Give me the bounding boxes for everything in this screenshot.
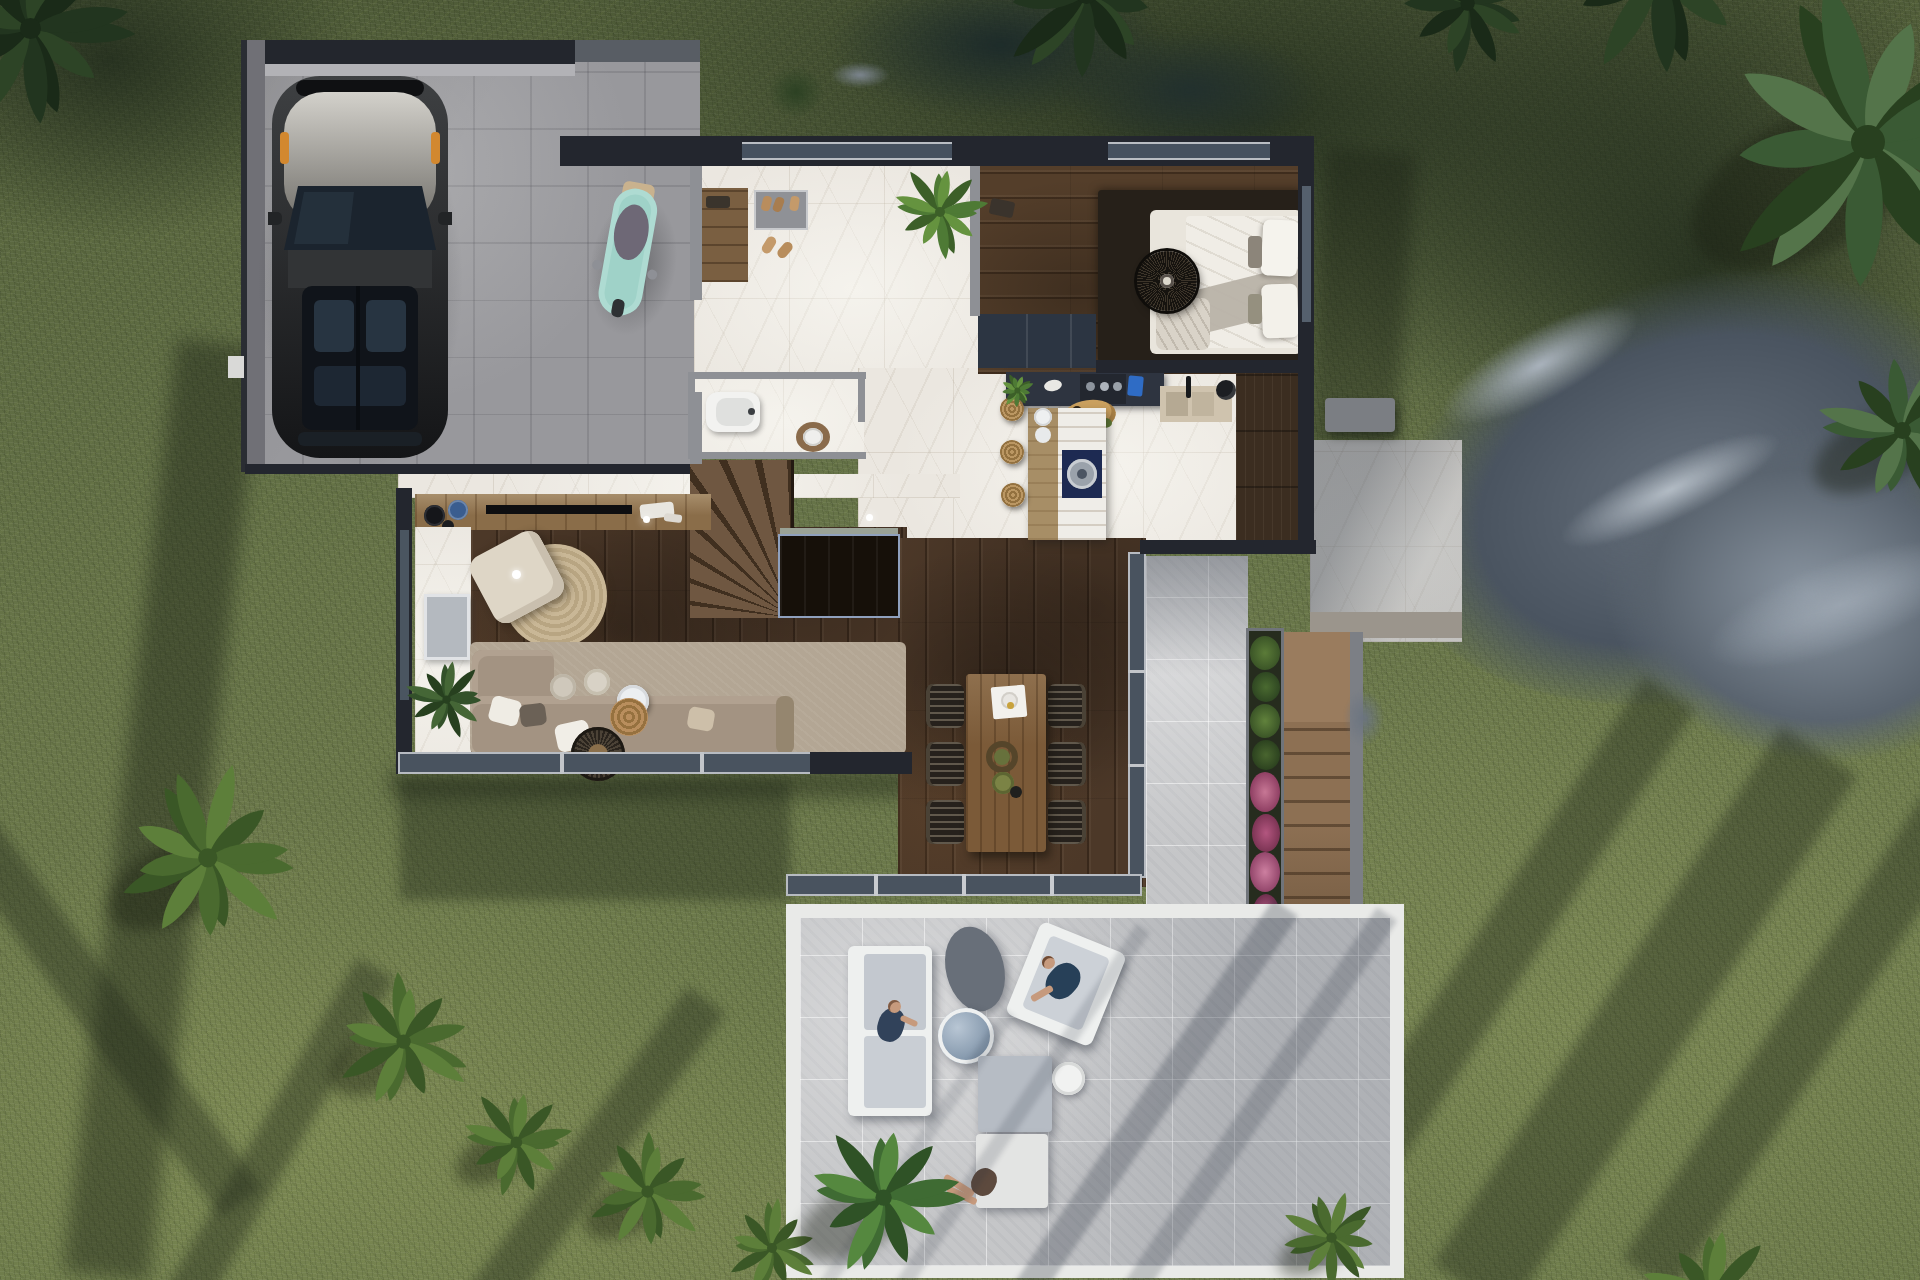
- lemon: [1007, 702, 1014, 709]
- bedroom-south-wall: [1096, 360, 1302, 373]
- sofa-pillow-dark: [519, 702, 548, 727]
- planter-flowers-pink: [1252, 814, 1280, 852]
- bed-pillow: [1261, 283, 1299, 338]
- garden-bench: [1325, 398, 1395, 432]
- north-window: [1108, 142, 1270, 160]
- deck-rock: [1344, 690, 1384, 746]
- wc-wall-bottom: [688, 452, 866, 459]
- cooktop-burner: [1100, 382, 1109, 391]
- bush: [768, 66, 824, 118]
- entry-left-wall: [690, 166, 702, 300]
- entry-tray: [706, 196, 730, 208]
- south-window-living: [398, 752, 814, 774]
- marble-console: [424, 594, 470, 660]
- kitchen-south-wall: [1140, 540, 1316, 554]
- wc-wall-right: [858, 372, 865, 422]
- tv: [486, 505, 632, 514]
- ceiling-light: [866, 514, 873, 521]
- island-bowl-inner: [1077, 469, 1087, 479]
- outdoor-sofa-cushion: [864, 1036, 926, 1108]
- bar-stool: [1000, 397, 1024, 421]
- garage-step-mark: [228, 356, 244, 378]
- bedroom-closet: [978, 314, 1096, 368]
- dining-chair: [926, 742, 964, 786]
- cooktop-burner: [1086, 382, 1095, 391]
- dining-chair: [926, 684, 964, 728]
- sink-basin: [1166, 392, 1188, 416]
- bar-stool: [1001, 483, 1025, 507]
- wreath-greens: [994, 749, 1010, 765]
- decor-plate-blue: [448, 500, 468, 520]
- wet-dark-patch: [1060, 30, 1320, 150]
- person-head: [1042, 956, 1055, 969]
- toilet-flush: [748, 408, 755, 415]
- kettle: [1216, 380, 1236, 400]
- north-window: [742, 142, 952, 160]
- door-rail: [1128, 670, 1146, 673]
- walkway-shade: [1146, 556, 1248, 676]
- window-mullion: [700, 752, 704, 774]
- planter-plant: [1250, 704, 1280, 738]
- coffee-table-rattan: [610, 698, 648, 736]
- armchair-light: [512, 570, 521, 579]
- east-sliding-door: [1128, 552, 1146, 878]
- bar-stool: [1000, 440, 1024, 464]
- east-window: [1302, 186, 1311, 322]
- scene-floorplan: [0, 0, 1920, 1280]
- dining-chair: [1048, 684, 1086, 728]
- suv-car: [268, 74, 452, 460]
- planter-plant: [1252, 672, 1280, 702]
- blue-pack: [1127, 375, 1144, 396]
- wc-wall-top: [688, 372, 866, 379]
- winder-stairs: [690, 460, 794, 618]
- rattan-fan-center: [1160, 274, 1174, 288]
- deck-steps: [1284, 632, 1350, 950]
- island-plate: [1034, 408, 1052, 426]
- garage-door-wall: [575, 40, 700, 62]
- grass-dark-strip: [400, 780, 790, 900]
- pouf: [550, 674, 576, 700]
- door-mullion: [874, 874, 878, 896]
- faucet: [1186, 376, 1191, 398]
- rock-small: [830, 62, 890, 88]
- dining-chair: [1048, 742, 1086, 786]
- tall-cabinets: [1236, 372, 1302, 544]
- bed-cushion: [1248, 236, 1262, 268]
- cooktop-burner: [1113, 382, 1122, 391]
- deck-kerb: [1350, 632, 1363, 950]
- planter-flowers-pink: [1250, 852, 1280, 892]
- dark-dish: [1010, 786, 1022, 798]
- stairwell-void: [780, 536, 898, 616]
- sink-basin: [1192, 392, 1214, 416]
- person-head: [888, 1000, 901, 1013]
- dining-chair: [1048, 800, 1086, 844]
- wc-sink-basin: [803, 428, 823, 446]
- stairwell-edge: [780, 528, 898, 536]
- door-rail: [1128, 764, 1146, 767]
- planter-plant: [1252, 740, 1280, 770]
- bed-cushion: [1248, 294, 1262, 324]
- door-mullion: [1050, 874, 1054, 896]
- garage-wall-top: [245, 40, 575, 64]
- dining-chair: [926, 800, 964, 844]
- west-window-living: [400, 530, 409, 700]
- pouf: [584, 669, 610, 695]
- window-mullion: [560, 752, 564, 774]
- bed-pillow: [1261, 219, 1300, 277]
- sofa-armrest: [776, 696, 794, 754]
- planter-flowers-pink: [1250, 772, 1280, 812]
- planter-plant: [1250, 636, 1280, 670]
- ceiling-light: [643, 516, 650, 523]
- sofa-pillow-beige: [686, 706, 715, 732]
- wc-wall-left: [688, 372, 695, 458]
- door-mullion: [962, 874, 966, 896]
- entry-bedroom-wall: [970, 166, 980, 316]
- south-wall-living: [810, 752, 912, 774]
- island-plate: [1035, 427, 1051, 443]
